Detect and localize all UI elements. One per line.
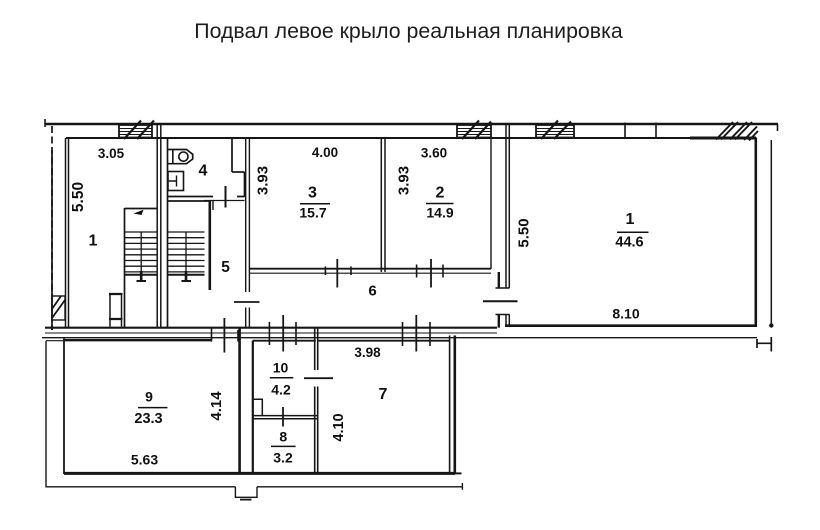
svg-text:10: 10 [273,360,289,376]
svg-text:6: 6 [368,283,376,300]
svg-text:4.00: 4.00 [312,145,338,160]
svg-text:Подвал левое крыло реальная пл: Подвал левое крыло реальная планировка [194,19,623,43]
svg-text:5.63: 5.63 [131,452,158,468]
svg-text:15.7: 15.7 [299,205,326,221]
svg-text:3.93: 3.93 [396,166,413,195]
svg-text:7: 7 [379,386,388,403]
svg-text:8.10: 8.10 [612,306,639,322]
svg-text:9: 9 [145,389,153,405]
svg-text:4: 4 [199,163,208,180]
svg-text:1: 1 [626,211,635,228]
svg-text:4.14: 4.14 [208,391,225,421]
svg-text:3.05: 3.05 [98,146,125,161]
svg-text:8: 8 [279,429,287,445]
svg-text:5.50: 5.50 [516,218,533,247]
svg-text:3: 3 [308,185,317,202]
svg-text:44.6: 44.6 [615,235,643,251]
svg-text:3.98: 3.98 [354,345,381,360]
svg-text:3.60: 3.60 [421,146,447,161]
svg-text:14.9: 14.9 [426,205,453,221]
svg-text:5: 5 [221,259,230,276]
svg-text:4.10: 4.10 [331,413,347,441]
svg-text:23.3: 23.3 [134,411,162,427]
svg-text:3.93: 3.93 [255,166,272,195]
svg-text:1: 1 [89,233,98,250]
svg-text:4.2: 4.2 [271,382,291,398]
svg-text:2: 2 [436,185,445,202]
svg-text:3.2: 3.2 [273,449,293,465]
svg-text:5.50: 5.50 [70,182,87,212]
